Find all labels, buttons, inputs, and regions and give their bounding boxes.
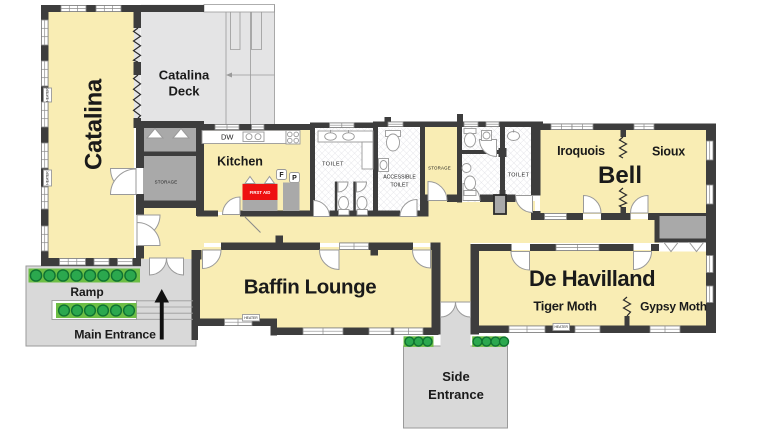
svg-text:HEATER: HEATER [244,316,258,320]
svg-text:Bell: Bell [598,162,642,189]
svg-text:FIRST AID: FIRST AID [250,190,271,195]
svg-text:Baffin Lounge: Baffin Lounge [244,276,377,299]
svg-text:F: F [279,172,284,179]
svg-text:Sioux: Sioux [652,145,685,159]
svg-text:DW: DW [221,133,234,142]
svg-text:Side: Side [442,369,469,384]
svg-text:STORAGE: STORAGE [428,166,451,171]
svg-text:HEATER: HEATER [46,171,50,185]
svg-text:Catalina: Catalina [81,78,108,170]
svg-text:Tiger Moth: Tiger Moth [533,299,597,314]
svg-text:P: P [292,175,297,182]
svg-text:Ramp: Ramp [70,285,103,299]
svg-text:Deck: Deck [168,84,200,99]
svg-text:De Havilland: De Havilland [529,266,655,291]
svg-text:Gypsy Moth: Gypsy Moth [640,300,707,314]
svg-text:Entrance: Entrance [428,387,484,402]
svg-text:Kitchen: Kitchen [217,155,263,169]
svg-text:ACCESSIBLE: ACCESSIBLE [383,175,416,181]
svg-text:Catalina: Catalina [159,68,210,83]
svg-text:TOILET: TOILET [508,173,530,179]
svg-text:TOILET: TOILET [390,183,409,189]
svg-text:HEATER: HEATER [46,88,50,102]
svg-text:STORAGE: STORAGE [155,180,178,185]
svg-text:Iroquois: Iroquois [557,144,605,158]
svg-text:Main Entrance: Main Entrance [74,328,156,342]
svg-text:HEATER: HEATER [554,325,568,329]
svg-text:TOILET: TOILET [322,162,344,168]
